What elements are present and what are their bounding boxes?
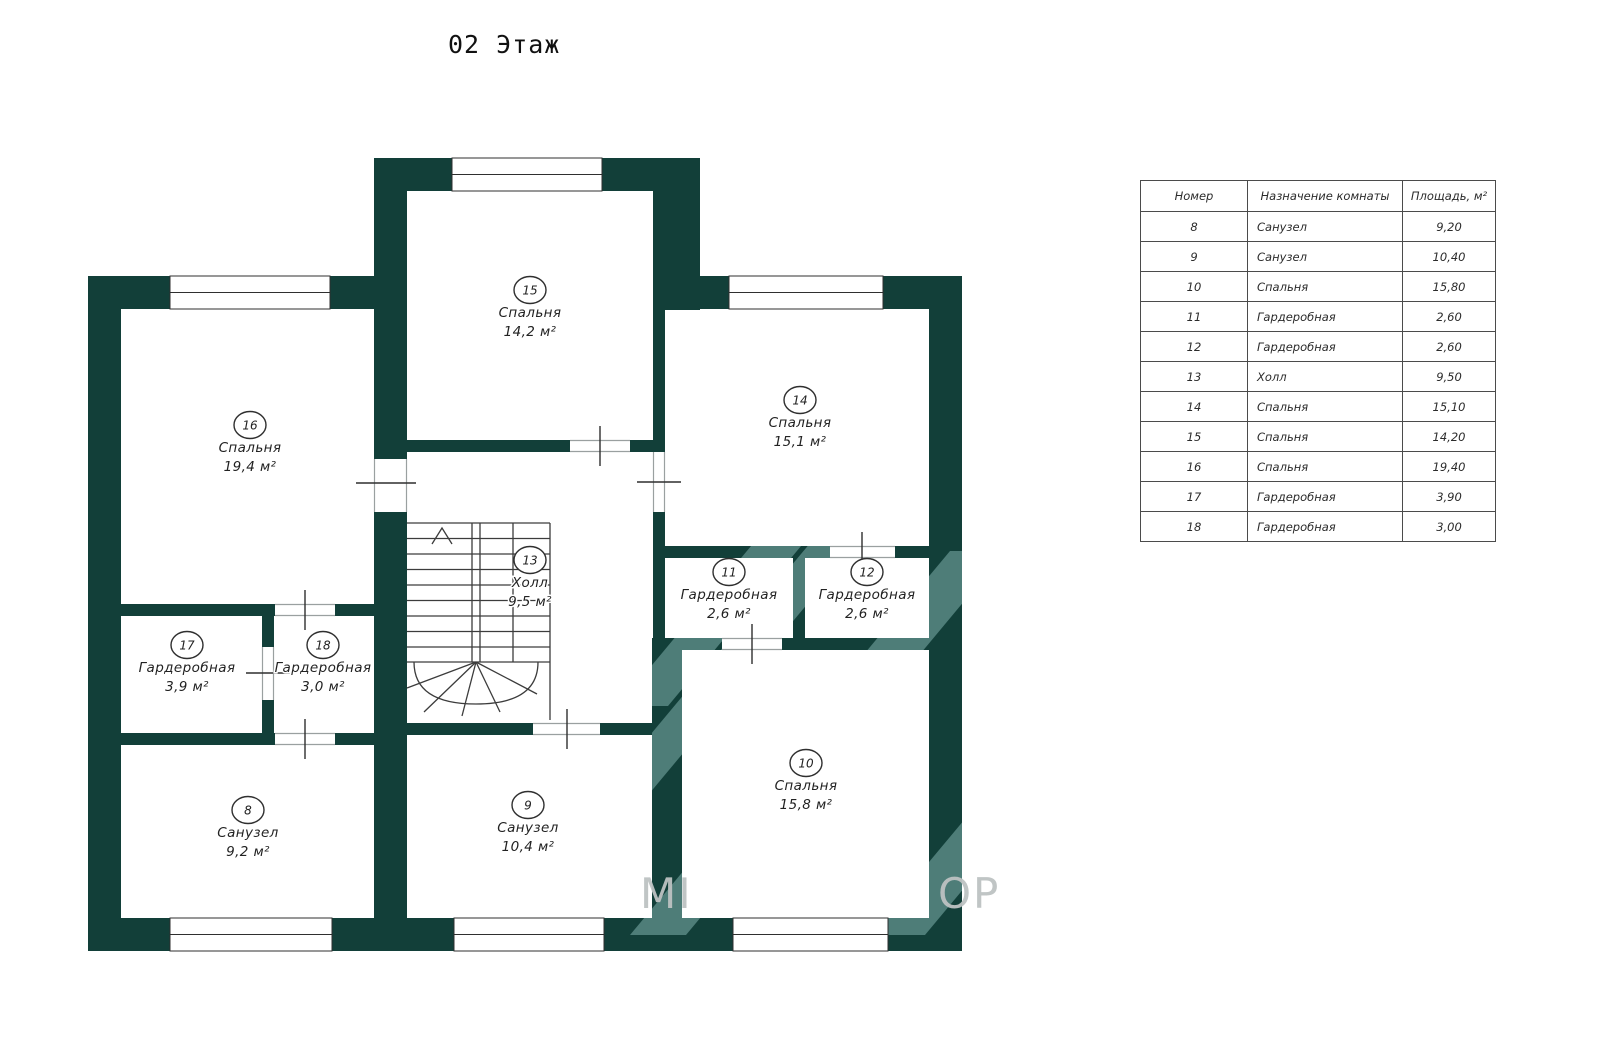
room-label-11: 11 Гардеробная 2,6 м² [681, 559, 778, 623]
room-number: 17 [179, 639, 195, 653]
cell-area: 19,40 [1403, 452, 1496, 482]
room-name: Спальня [219, 440, 282, 456]
cell-number: 12 [1141, 332, 1248, 362]
cell-area: 10,40 [1403, 242, 1496, 272]
room-area: 9,2 м² [226, 844, 270, 860]
room-area: 15,1 м² [774, 434, 827, 450]
header-number: Номер [1141, 181, 1248, 212]
room-area: 9,5 м² [508, 594, 552, 610]
cell-number: 15 [1141, 422, 1248, 452]
table-row: 16 Спальня 19,40 [1141, 452, 1496, 482]
cell-area: 14,20 [1403, 422, 1496, 452]
room-number: 9 [524, 799, 532, 813]
room-label-8: 8 Санузел 9,2 м² [217, 797, 278, 861]
table-row: 13 Холл 9,50 [1141, 362, 1496, 392]
cell-purpose: Спальня [1248, 272, 1403, 302]
window-room8 [170, 918, 332, 951]
room-number: 14 [792, 394, 807, 408]
room-area: 3,9 м² [165, 679, 209, 695]
room-area: 15,8 м² [780, 797, 833, 813]
cell-number: 9 [1141, 242, 1248, 272]
room-label-10: 10 Спальня 15,8 м² [775, 750, 838, 814]
room-name: Гардеробная [139, 660, 236, 676]
cell-number: 17 [1141, 482, 1248, 512]
cell-number: 16 [1141, 452, 1248, 482]
room-number: 12 [859, 566, 874, 580]
cell-area: 9,20 [1403, 212, 1496, 242]
room-label-13: 13 Холл 9,5 м² [508, 547, 552, 611]
room-label-14: 14 Спальня 15,1 м² [769, 387, 832, 451]
cell-area: 15,80 [1403, 272, 1496, 302]
room-area: 19,4 м² [224, 459, 277, 475]
room-area: 3,0 м² [301, 679, 345, 695]
room-label-12: 12 Гардеробная 2,6 м² [819, 559, 916, 623]
room-area: 2,6 м² [707, 606, 751, 622]
cell-purpose: Спальня [1248, 452, 1403, 482]
header-purpose: Назначение комнаты [1248, 181, 1403, 212]
window-room9 [454, 918, 604, 951]
window-room15 [452, 158, 602, 191]
table-row: 15 Спальня 14,20 [1141, 422, 1496, 452]
room-name: Гардеробная [275, 660, 372, 676]
watermark-text-right: ОР [938, 869, 1000, 918]
room-name: Гардеробная [819, 587, 916, 603]
table-row: 10 Спальня 15,80 [1141, 272, 1496, 302]
cell-number: 10 [1141, 272, 1248, 302]
window-room14 [729, 276, 883, 309]
room-label-16: 16 Спальня 19,4 м² [219, 412, 282, 476]
room-number: 10 [798, 757, 814, 771]
table-row: 8 Санузел 9,20 [1141, 212, 1496, 242]
cell-purpose: Гардеробная [1248, 482, 1403, 512]
watermark-text-left: МІ [640, 869, 693, 918]
room-number: 18 [315, 639, 331, 653]
table-header-row: Номер Назначение комнаты Площадь, м² [1141, 181, 1496, 212]
room-label-9: 9 Санузел 10,4 м² [497, 792, 558, 856]
room-name: Холл [511, 575, 548, 591]
up-arrow-icon [432, 528, 452, 544]
cell-purpose: Гардеробная [1248, 302, 1403, 332]
room-schedule-table: Номер Назначение комнаты Площадь, м² 8 С… [1140, 180, 1496, 542]
cell-area: 9,50 [1403, 362, 1496, 392]
table-row: 11 Гардеробная 2,60 [1141, 302, 1496, 332]
cell-area: 2,60 [1403, 332, 1496, 362]
table-row: 14 Спальня 15,10 [1141, 392, 1496, 422]
cell-purpose: Холл [1248, 362, 1403, 392]
cell-number: 11 [1141, 302, 1248, 332]
room-name: Спальня [775, 778, 838, 794]
room-name: Санузел [217, 825, 278, 841]
room-number: 8 [244, 804, 252, 818]
room-label-15: 15 Спальня 14,2 м² [499, 277, 562, 341]
window-room10 [733, 918, 888, 951]
room-number: 11 [721, 566, 736, 580]
room-area: 2,6 м² [845, 606, 889, 622]
cell-number: 14 [1141, 392, 1248, 422]
cell-area: 3,90 [1403, 482, 1496, 512]
cell-purpose: Гардеробная [1248, 512, 1403, 542]
room-area: 14,2 м² [504, 324, 557, 340]
cell-purpose: Спальня [1248, 422, 1403, 452]
header-area: Площадь, м² [1403, 181, 1496, 212]
cell-purpose: Спальня [1248, 392, 1403, 422]
room-number: 15 [522, 284, 537, 298]
cell-number: 18 [1141, 512, 1248, 542]
cell-number: 13 [1141, 362, 1248, 392]
room-area: 10,4 м² [502, 839, 555, 855]
table-row: 12 Гардеробная 2,60 [1141, 332, 1496, 362]
cell-purpose: Санузел [1248, 212, 1403, 242]
window-room16 [170, 276, 330, 309]
room-name: Гардеробная [681, 587, 778, 603]
table-row: 17 Гардеробная 3,90 [1141, 482, 1496, 512]
cell-number: 8 [1141, 212, 1248, 242]
room-number: 13 [522, 554, 537, 568]
room-number: 16 [242, 419, 258, 433]
cell-purpose: Гардеробная [1248, 332, 1403, 362]
table-row: 9 Санузел 10,40 [1141, 242, 1496, 272]
room-name: Санузел [497, 820, 558, 836]
cell-area: 2,60 [1403, 302, 1496, 332]
room-name: Спальня [769, 415, 832, 431]
room-name: Спальня [499, 305, 562, 321]
table-row: 18 Гардеробная 3,00 [1141, 512, 1496, 542]
cell-purpose: Санузел [1248, 242, 1403, 272]
room-label-18: 18 Гардеробная 3,0 м² [275, 632, 372, 696]
room-label-17: 17 Гардеробная 3,9 м² [139, 632, 236, 696]
cell-area: 15,10 [1403, 392, 1496, 422]
cell-area: 3,00 [1403, 512, 1496, 542]
